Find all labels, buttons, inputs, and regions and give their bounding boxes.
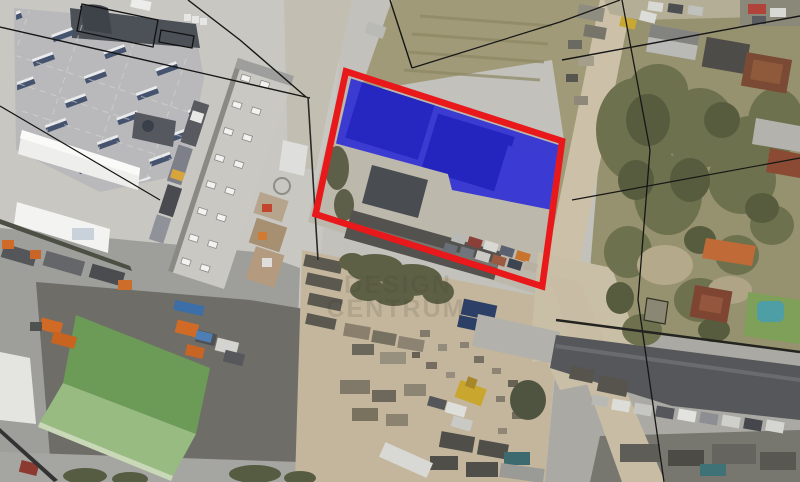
svg-text:CENTRUM: CENTRUM (327, 295, 466, 323)
